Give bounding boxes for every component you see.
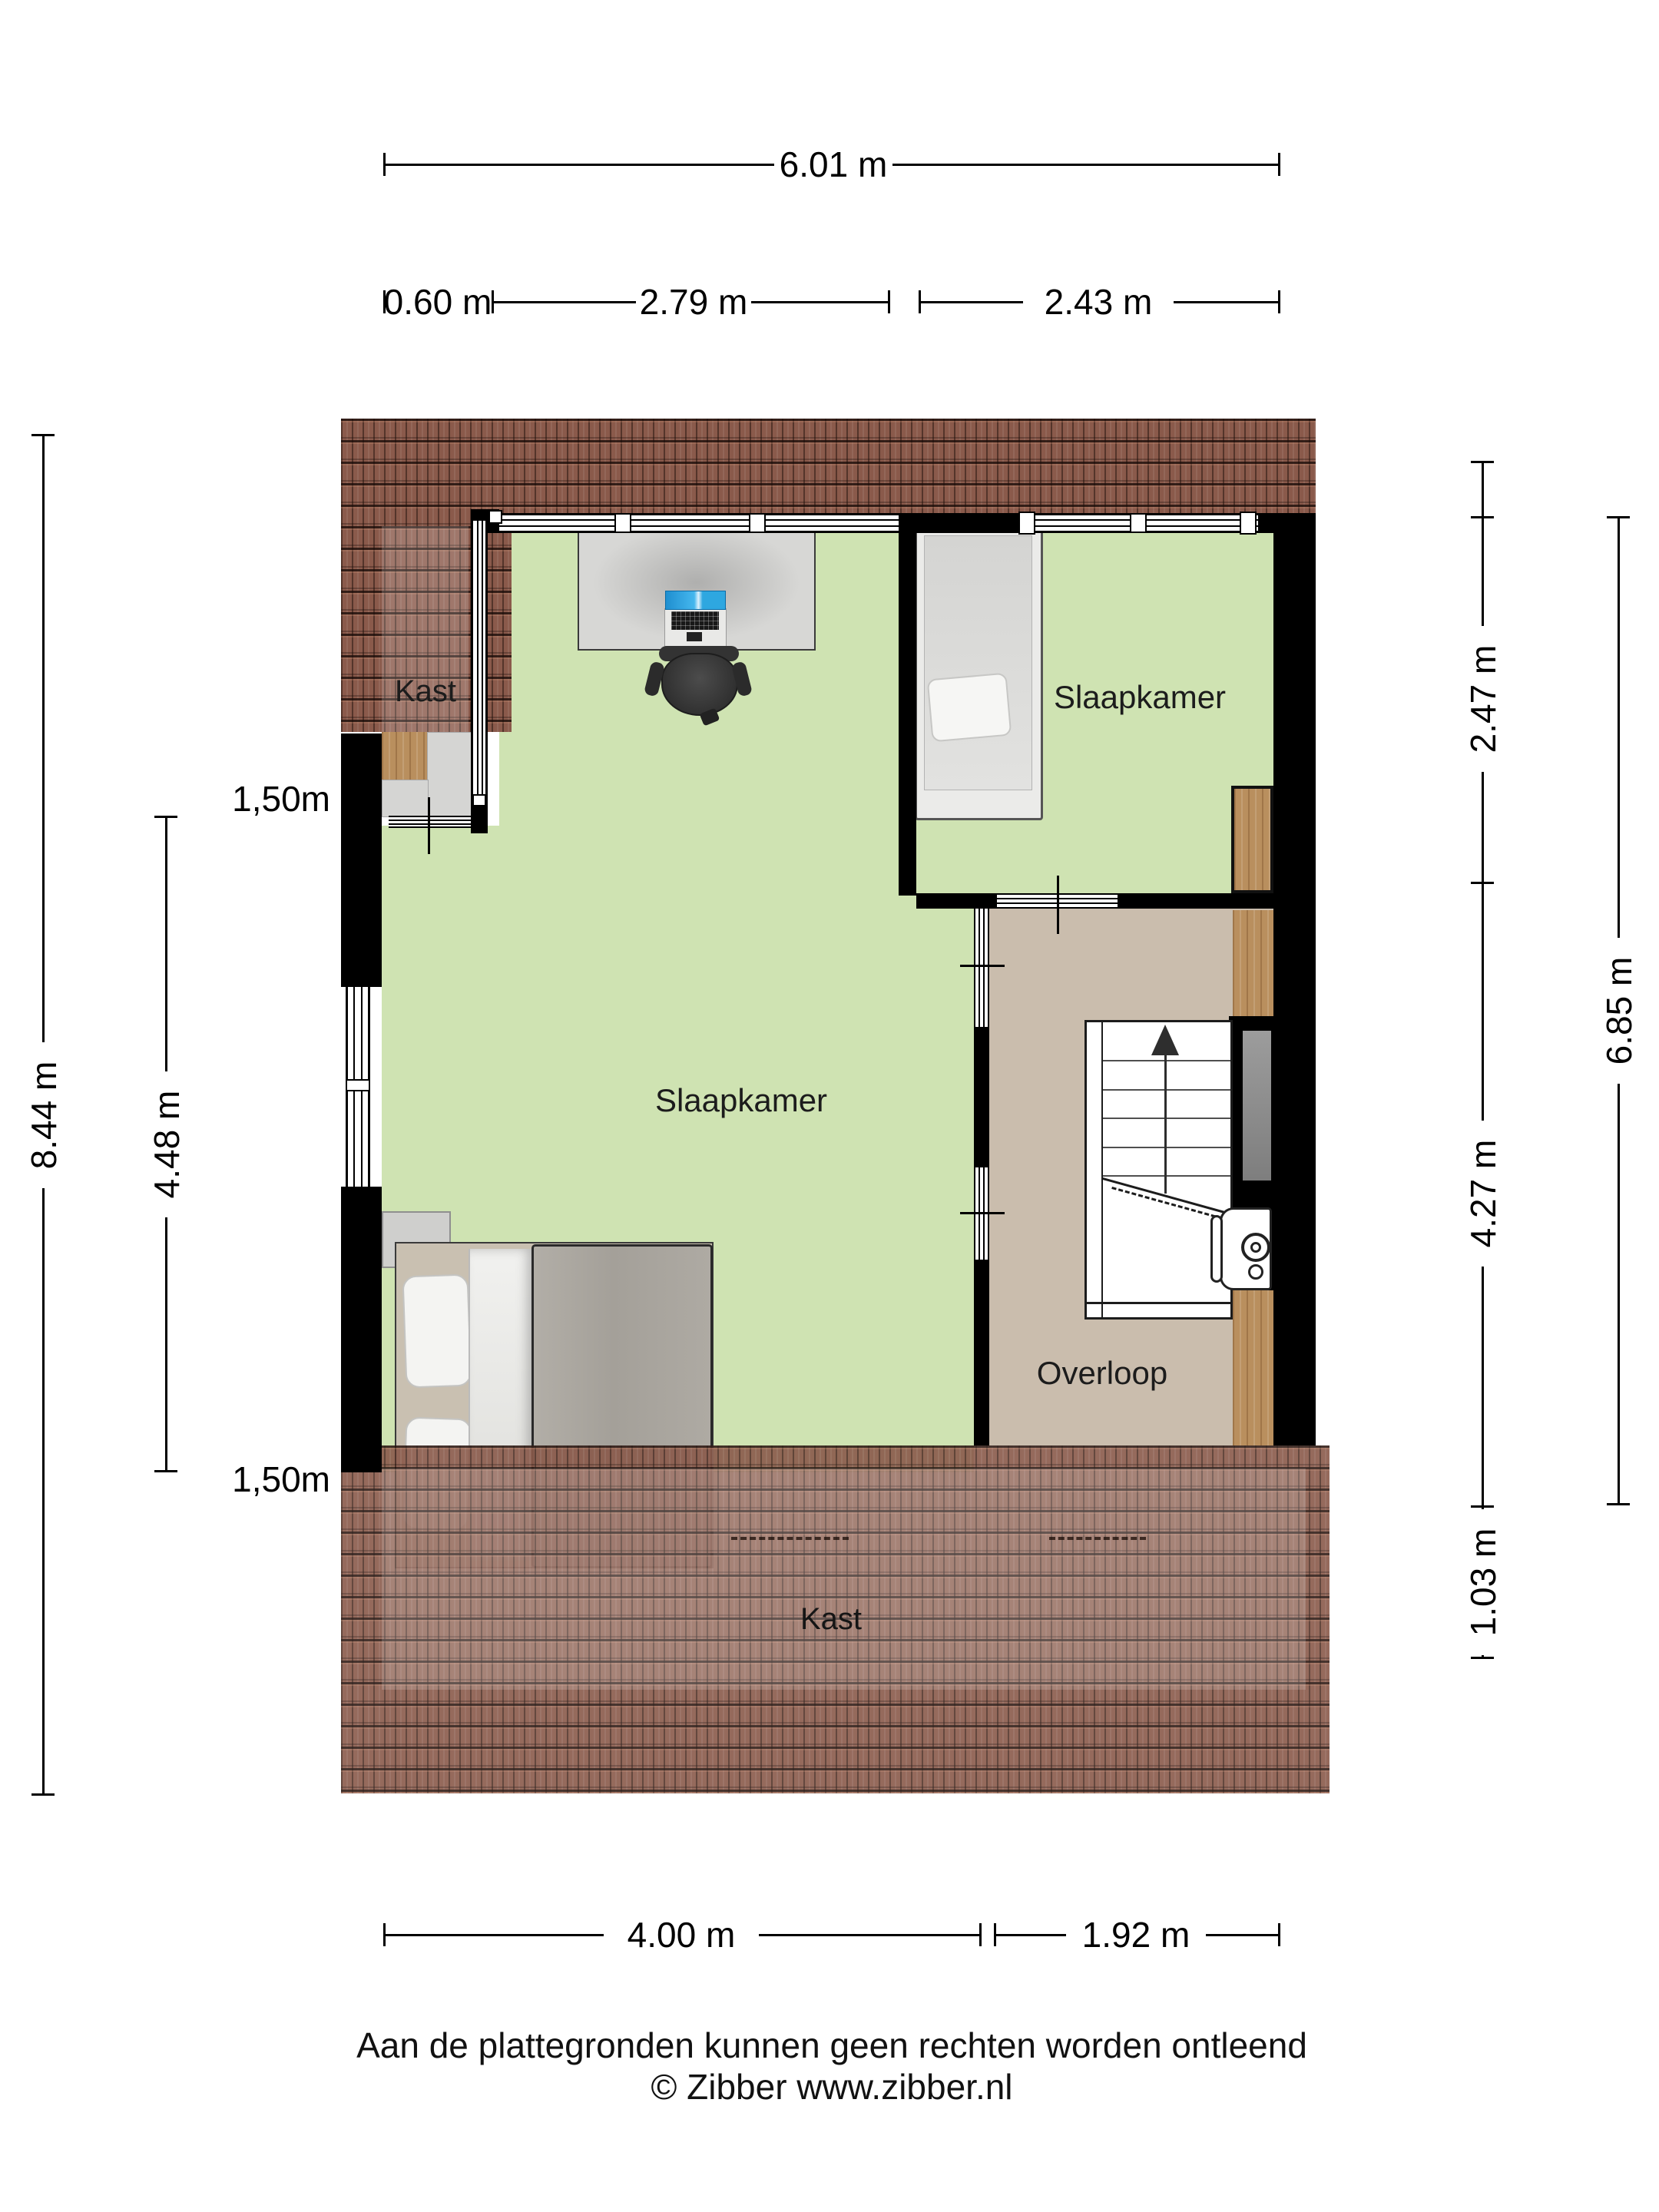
stairs-tread-3	[1103, 1118, 1230, 1119]
window-niche-cap-top	[488, 510, 502, 524]
laptop-keyboard	[671, 611, 719, 630]
dim-row2-tick-5	[1278, 290, 1280, 313]
single-bed-pillow	[927, 673, 1012, 743]
dim-top-tick-r	[1278, 153, 1280, 176]
dim-bottom-tick-1	[383, 1923, 386, 1946]
dim-headroom-top-label: 1,50m	[177, 779, 330, 819]
room-label-kast-top: Kast	[349, 674, 502, 709]
dim-left-inner-tick-b	[154, 1470, 177, 1472]
window-top-left	[499, 513, 899, 533]
dim-row2-tick-4	[919, 290, 921, 313]
stairs-tread-1	[1103, 1060, 1230, 1061]
roof-window-dash-right	[1049, 1537, 1146, 1540]
floor-plan-page: Kast Slaapkamer Slaapkamer Overloop Kast…	[0, 0, 1659, 2212]
window-end-block-left	[1018, 512, 1035, 535]
window-mullion-3	[1130, 513, 1147, 533]
laptop-screen	[665, 591, 726, 610]
dim-right-inner-label-3: 1.03 m	[1463, 1509, 1503, 1655]
stairs-direction-line	[1164, 1051, 1167, 1194]
dim-right-inner-tick-0	[1471, 461, 1494, 463]
room-label-slaapkamer-main: Slaapkamer	[626, 1082, 856, 1119]
door-opening-main-bedroom	[974, 909, 989, 1027]
dim-right-inner-tick-2	[1471, 882, 1494, 884]
dim-row2-tick-3	[888, 290, 890, 313]
kast-niche-wood-floor	[382, 732, 427, 780]
dim-left-inner-label: 4.48 m	[147, 1071, 187, 1217]
wall-top-middle	[899, 513, 1020, 533]
wood-floor-strip-upper	[1233, 910, 1273, 1016]
wall-main-overloop-low	[974, 1260, 989, 1445]
office-chair-seat	[661, 653, 738, 716]
dim-bottom-label-2: 1.92 m	[1078, 1915, 1194, 1955]
kast-niche-dresser-top	[427, 732, 472, 817]
wall-left-lower	[341, 1187, 382, 1472]
wall-rightroom-bottom-right	[1118, 893, 1273, 909]
stairs-tread-4	[1103, 1147, 1230, 1148]
footer-copyright: © Zibber www.zibber.nl	[217, 2066, 1446, 2108]
wall-niche-bottom-stub	[471, 805, 488, 833]
boiler-side-flap	[1210, 1215, 1223, 1283]
dim-bottom-line-d	[1206, 1934, 1278, 1936]
dim-left-outer-tick-b	[31, 1793, 55, 1796]
dim-top-label: 6.01 m	[776, 144, 891, 184]
single-bed-mattress	[924, 535, 1032, 790]
stairs-rail-line	[1101, 1022, 1103, 1317]
dim-left-outer-tick-t	[31, 434, 55, 436]
dim-left-outer-label: 8.44 m	[24, 1042, 64, 1188]
dim-bottom-line-b	[759, 1934, 979, 1936]
dim-bottom-line-c	[994, 1934, 1066, 1936]
wall-right	[1273, 513, 1316, 1445]
window-mullion-2	[749, 513, 766, 533]
door-tick-main-bedroom	[960, 965, 1005, 967]
dim-row2-label-1: 0.60 m	[380, 282, 495, 322]
kast-niche-dresser-left	[382, 780, 429, 817]
room-label-slaapkamer-right: Slaapkamer	[1025, 679, 1255, 716]
room-label-kast-bottom: Kast	[754, 1602, 908, 1637]
window-mullion-1	[614, 513, 631, 533]
door-tick-right-bedroom	[1057, 876, 1059, 934]
dim-right-inner-label-1: 2.47 m	[1463, 626, 1503, 772]
dim-right-inner-tick-1	[1471, 516, 1494, 518]
wall-partition-bedrooms	[899, 528, 916, 896]
dim-right-inner-tick-4	[1471, 1657, 1494, 1659]
stairs-tread-5	[1103, 1175, 1230, 1177]
window-niche-vertical	[471, 521, 488, 805]
dim-right-inner-label-2: 4.27 m	[1463, 1121, 1503, 1267]
dim-right-inner-tick-3	[1471, 1505, 1494, 1508]
dim-row2-line-d	[1174, 301, 1278, 303]
stairs-bottom-edge	[1084, 1302, 1233, 1304]
roof-window-dash-left	[731, 1537, 849, 1540]
dim-row2-line-c	[919, 301, 1023, 303]
wall-main-overloop-mid	[974, 1027, 989, 1167]
wall-rightroom-bottom-left	[916, 893, 997, 909]
dim-headroom-bottom-label: 1,50m	[177, 1459, 330, 1499]
dim-bottom-tick-4	[1278, 1923, 1280, 1946]
window-end-block-right	[1240, 512, 1257, 535]
dim-right-outer-tick-t	[1607, 516, 1630, 518]
roof-bottom-kast-overlay	[382, 1469, 1306, 1690]
opening-tick-main-overloop	[960, 1212, 1005, 1214]
dim-bottom-line-a	[383, 1934, 604, 1936]
dim-bottom-tick-3	[994, 1923, 996, 1946]
dim-right-outer-label: 6.85 m	[1599, 938, 1639, 1084]
double-bed-pillow-top	[402, 1274, 472, 1389]
opening-tick-niche	[428, 797, 430, 854]
cupboard-panel	[1243, 1031, 1271, 1181]
stairs-up-arrow-icon	[1151, 1025, 1179, 1055]
dim-right-outer-tick-b	[1607, 1503, 1630, 1505]
dim-row2-label-2: 2.79 m	[636, 282, 751, 322]
window-left-divider	[346, 1079, 370, 1091]
wall-left-upper	[341, 733, 382, 987]
dim-bottom-tick-2	[979, 1923, 982, 1946]
boiler-ring-small	[1248, 1264, 1263, 1280]
wood-floor-strip-lower	[1233, 1290, 1273, 1445]
wardrobe	[1231, 786, 1273, 893]
boiler-ring-inner	[1250, 1242, 1261, 1253]
room-label-overloop: Overloop	[987, 1355, 1217, 1392]
dim-bottom-label-1: 4.00 m	[624, 1915, 739, 1955]
dim-row2-line-b	[751, 301, 888, 303]
dim-top-line-a	[383, 164, 774, 166]
dim-top-line-b	[892, 164, 1278, 166]
dim-row2-label-3: 2.43 m	[1041, 282, 1156, 322]
laptop-touchpad	[687, 632, 702, 641]
dim-top-tick-l	[383, 153, 386, 176]
footer-disclaimer: Aan de plattegronden kunnen geen rechten…	[217, 2025, 1446, 2066]
dim-left-inner-tick-t	[154, 816, 177, 818]
dim-row2-line-a	[492, 301, 636, 303]
stairs-tread-2	[1103, 1089, 1230, 1091]
